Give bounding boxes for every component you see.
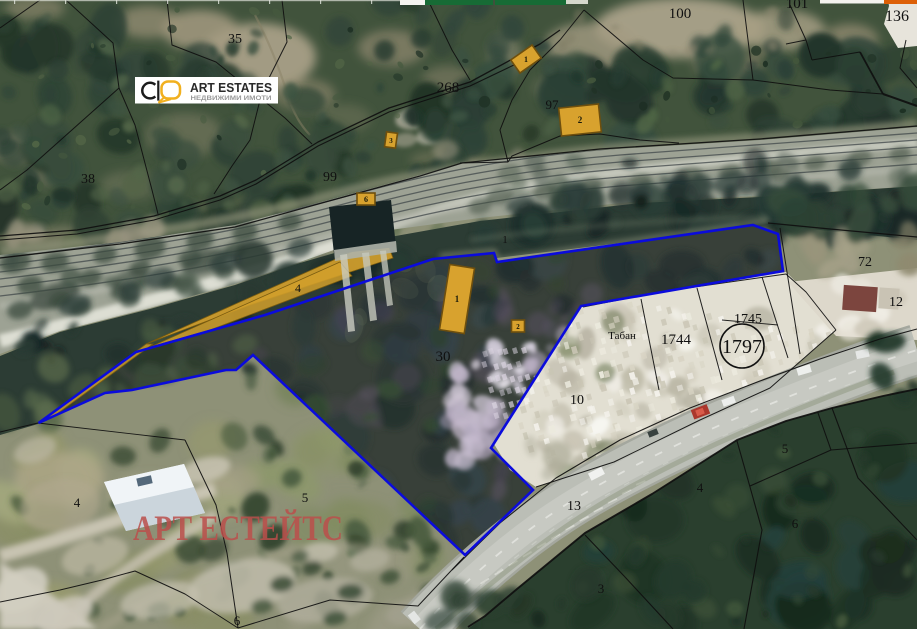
svg-text:10: 10 <box>570 393 584 408</box>
svg-text:12: 12 <box>889 295 903 310</box>
svg-text:6: 6 <box>792 516 799 531</box>
svg-text:100: 100 <box>669 6 692 22</box>
svg-text:3: 3 <box>389 137 393 145</box>
svg-text:4: 4 <box>697 480 704 495</box>
svg-text:НЕДВИЖИМИ ИМОТИ: НЕДВИЖИМИ ИМОТИ <box>191 95 273 102</box>
svg-text:30: 30 <box>436 349 451 365</box>
svg-text:35: 35 <box>228 32 242 47</box>
svg-text:13: 13 <box>567 499 581 514</box>
svg-text:1797: 1797 <box>722 336 762 358</box>
svg-text:38: 38 <box>81 172 95 187</box>
svg-text:6: 6 <box>234 613 241 628</box>
svg-text:99: 99 <box>323 170 337 185</box>
svg-text:5: 5 <box>782 441 789 456</box>
svg-text:1: 1 <box>455 294 460 304</box>
svg-text:ART ESTATES: ART ESTATES <box>190 81 272 95</box>
svg-text:АРТ ЕСТЕЙТС: АРТ ЕСТЕЙТС <box>133 508 343 548</box>
svg-text:Табан: Табан <box>608 330 636 342</box>
svg-text:72: 72 <box>858 255 872 270</box>
svg-text:1: 1 <box>502 234 508 246</box>
svg-text:1744: 1744 <box>661 332 692 348</box>
svg-text:6: 6 <box>364 195 368 204</box>
svg-text:3: 3 <box>598 581 605 596</box>
svg-text:101: 101 <box>786 0 809 12</box>
svg-text:268: 268 <box>437 80 460 96</box>
svg-text:4: 4 <box>74 495 81 510</box>
svg-text:97: 97 <box>546 97 560 112</box>
svg-text:1: 1 <box>524 55 528 64</box>
svg-text:136: 136 <box>885 8 909 25</box>
svg-text:4: 4 <box>295 281 301 295</box>
svg-text:2: 2 <box>578 115 583 125</box>
svg-text:2: 2 <box>516 323 520 331</box>
svg-text:5: 5 <box>302 490 309 505</box>
